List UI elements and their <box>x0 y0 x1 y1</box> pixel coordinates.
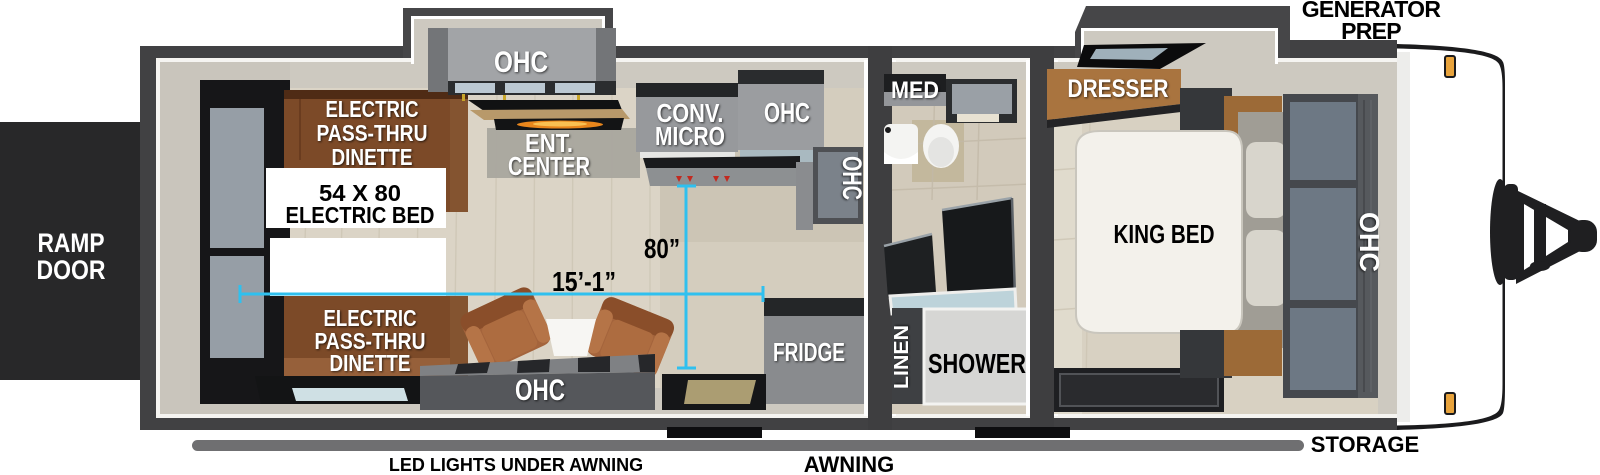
svg-text:MICRO: MICRO <box>655 121 725 151</box>
svg-text:OHC: OHC <box>1354 212 1385 272</box>
svg-text:STORAGE: STORAGE <box>1311 432 1419 457</box>
svg-text:15’-1”: 15’-1” <box>552 266 616 297</box>
svg-text:CENTER: CENTER <box>508 151 590 181</box>
svg-text:KING BED: KING BED <box>1114 219 1215 249</box>
svg-text:SHOWER: SHOWER <box>928 348 1026 379</box>
svg-text:OHC: OHC <box>764 97 810 128</box>
svg-text:LINEN: LINEN <box>891 325 913 389</box>
svg-text:OHC: OHC <box>837 156 867 200</box>
svg-text:FRIDGE: FRIDGE <box>773 337 845 367</box>
svg-text:DINETTE: DINETTE <box>330 350 411 376</box>
svg-text:DINETTE: DINETTE <box>332 144 413 170</box>
svg-text:DOOR: DOOR <box>37 255 106 285</box>
svg-text:PASS-THRU: PASS-THRU <box>317 120 428 146</box>
svg-text:ELECTRIC BED: ELECTRIC BED <box>286 202 435 228</box>
svg-text:80”: 80” <box>644 233 680 264</box>
svg-text:DRESSER: DRESSER <box>1068 75 1169 103</box>
svg-text:LED LIGHTS UNDER AWNING: LED LIGHTS UNDER AWNING <box>389 455 643 475</box>
svg-text:OHC: OHC <box>515 374 565 407</box>
svg-text:MED: MED <box>891 77 939 104</box>
svg-text:OHC: OHC <box>494 46 548 79</box>
svg-text:AWNING: AWNING <box>804 452 894 475</box>
svg-text:ELECTRIC: ELECTRIC <box>326 96 419 122</box>
svg-text:RAMP: RAMP <box>38 228 105 258</box>
